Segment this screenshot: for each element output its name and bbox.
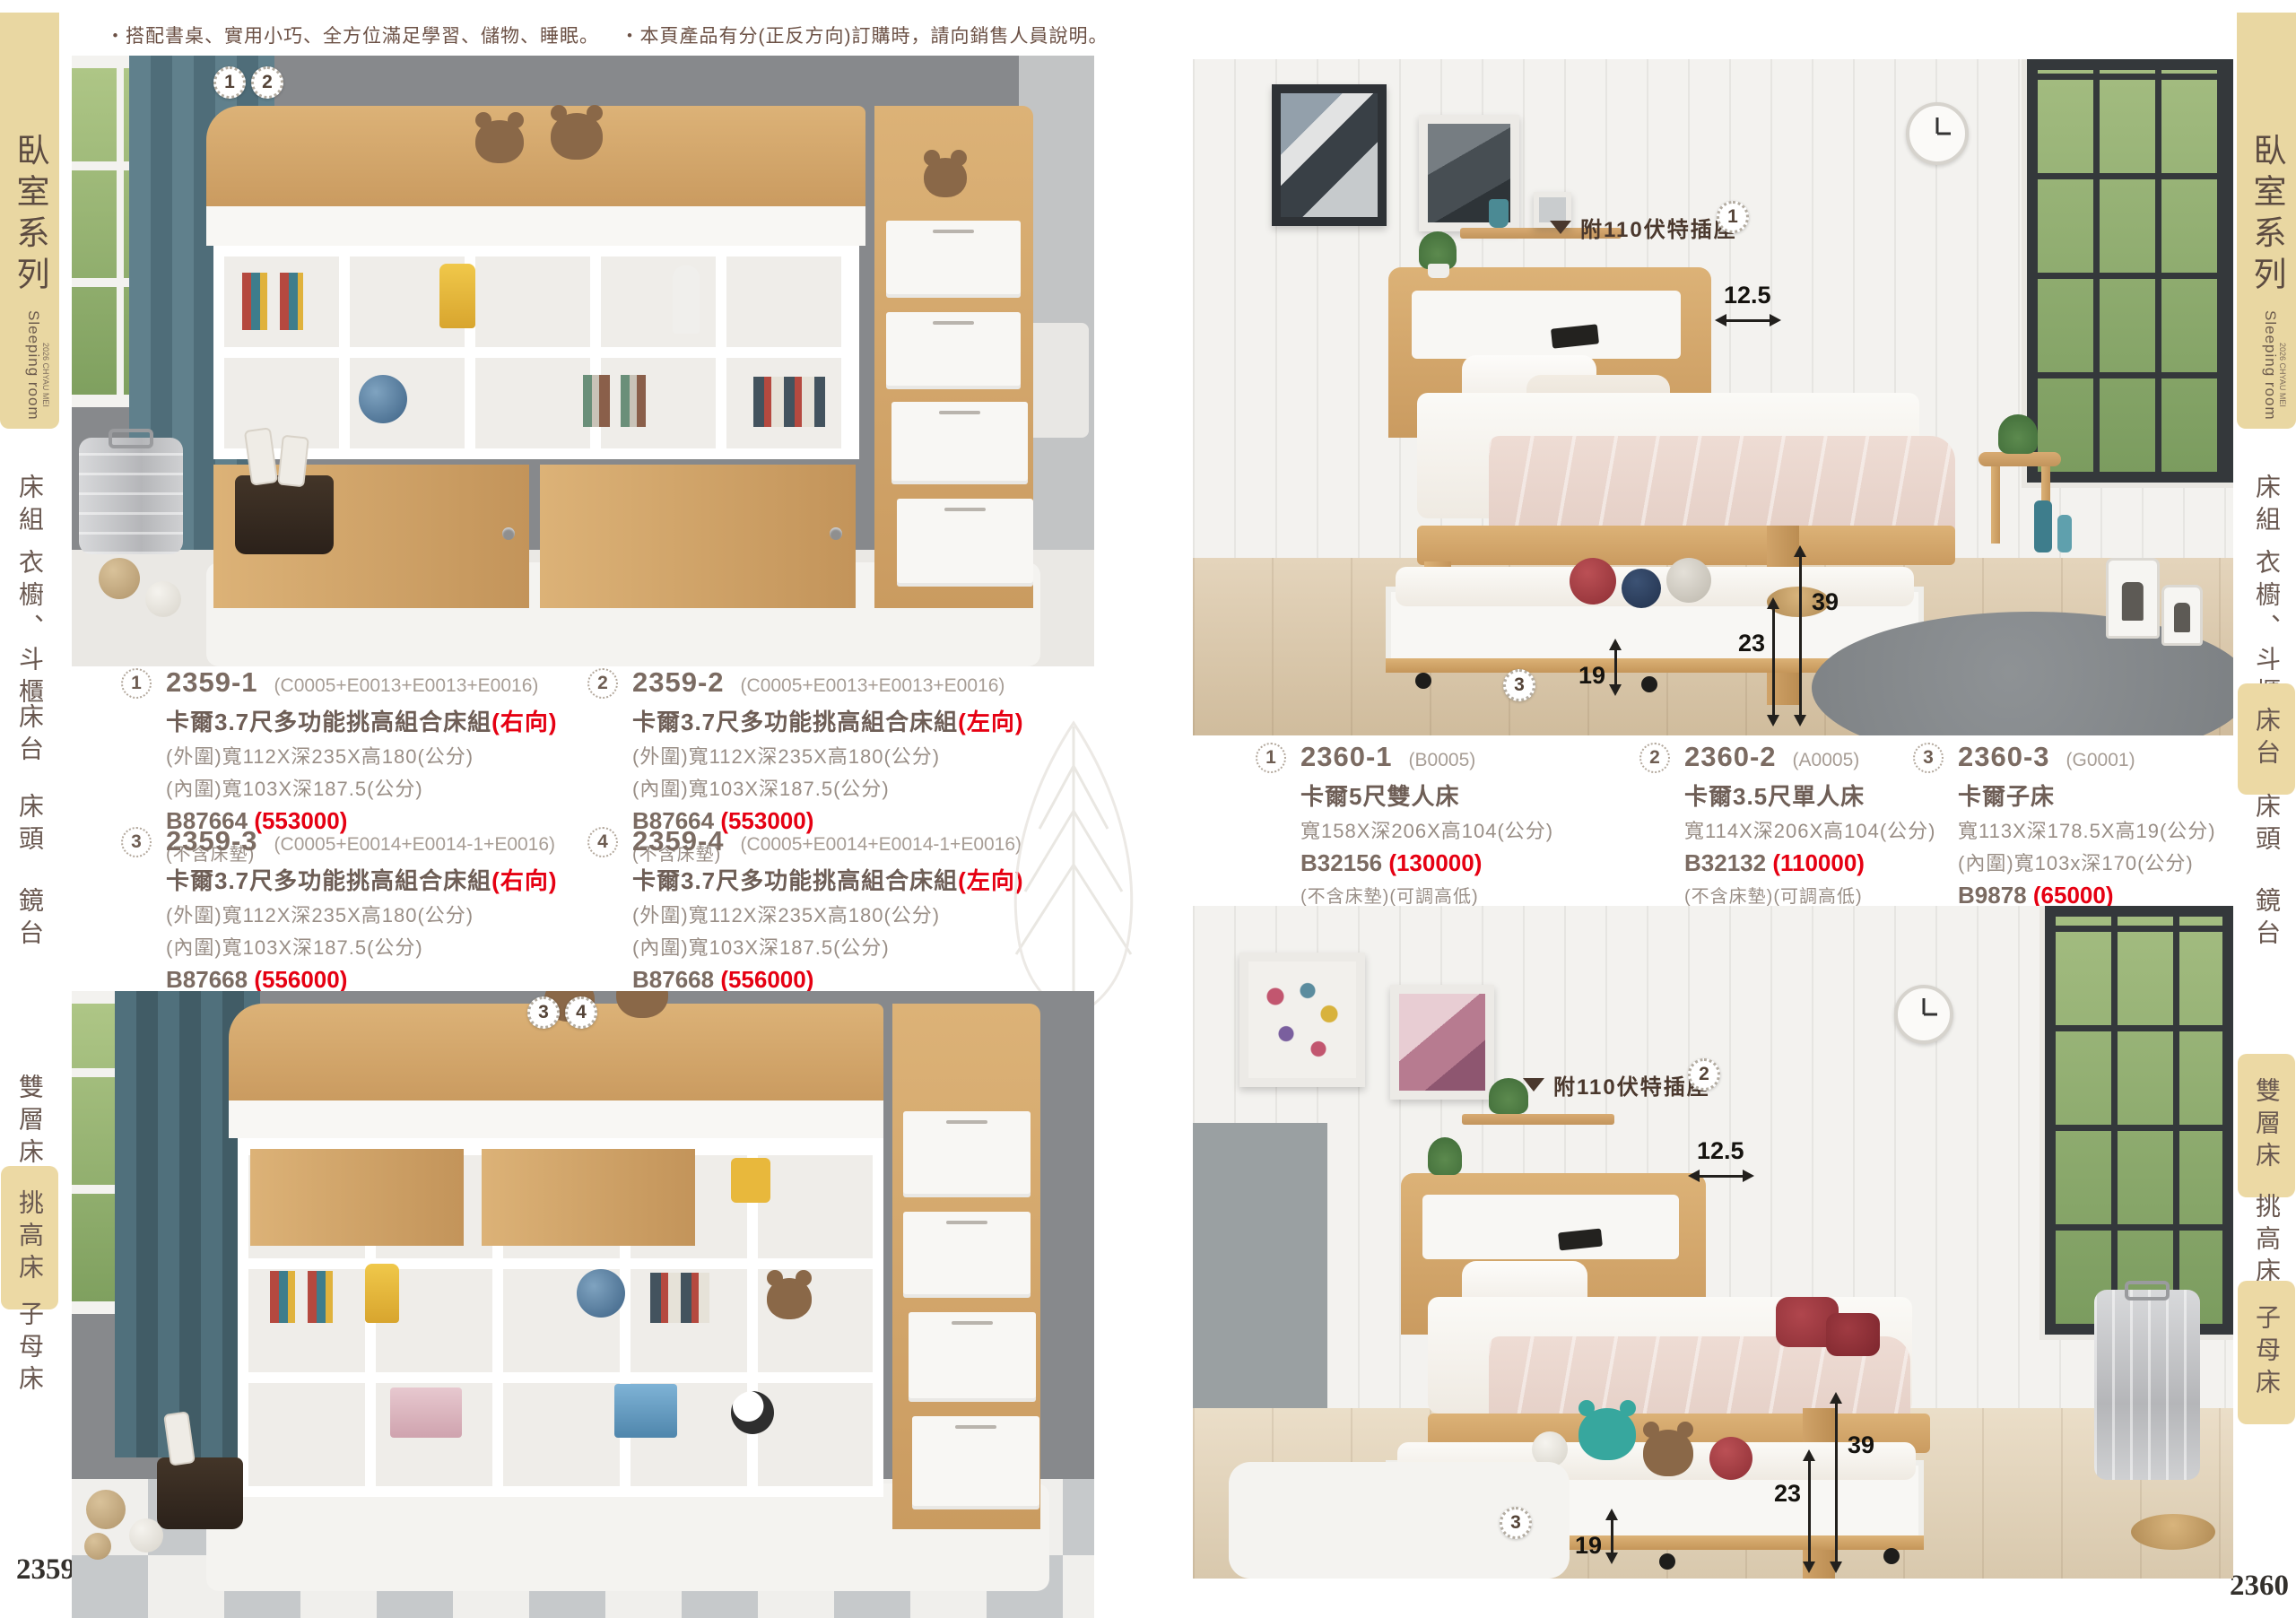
shelf-decor-mannequin <box>673 265 700 334</box>
photo-double-bed-trundle: 附110伏特插座 1 12.5 39 23 19 3 <box>1193 59 2233 735</box>
series-tab-right: 臥室系列 Sleeping room 2026 CHYAU MEI <box>2237 13 2296 429</box>
wicker-ball <box>145 581 181 617</box>
dim-shelf-label: 12.5 <box>1724 282 1771 309</box>
page-number-right: 2360 <box>2230 1570 2289 1603</box>
photo-marker-2: 2 <box>1688 1058 1720 1091</box>
sidebar-left-item-headboards: 床頭 <box>12 793 48 857</box>
series-edition: 2026 CHYAU MEI <box>2278 343 2287 407</box>
photo-marker-3: 3 <box>527 996 560 1029</box>
dim-leg-label: 39 <box>1812 588 1839 616</box>
stair-drawer <box>886 312 1021 389</box>
potted-plant <box>1428 1137 1462 1175</box>
product-name-text: 卡爾3.7尺多功能挑高組合床組 <box>166 709 491 735</box>
product-model: 2359-1 <box>166 666 258 699</box>
dim-leg-arrow <box>1835 1397 1838 1568</box>
photo-marker-1: 1 <box>1717 201 1749 233</box>
door-knob <box>502 527 515 540</box>
dim-trundle-label: 19 <box>1578 662 1605 690</box>
caster-wheel <box>1641 676 1657 692</box>
product-price: (556000) <box>254 966 347 993</box>
shelf-decor-books <box>650 1273 709 1323</box>
headboard-panel <box>1412 291 1681 359</box>
loft-bed-unit <box>229 1004 1040 1529</box>
shelf-decor-panda-ball <box>731 1391 774 1434</box>
product-combo-code: (C0005+E0014+E0014-1+E0016) <box>741 834 1022 856</box>
product-price: (556000) <box>720 966 813 993</box>
outlet-label: 附110伏特插座 <box>1553 1069 1710 1100</box>
shelf-door <box>250 1149 464 1246</box>
shelf-decor-toy <box>731 1158 770 1203</box>
product-code: B87668 <box>632 966 714 993</box>
sidebar-left-item-trundle-beds: 子母床 <box>12 1300 48 1397</box>
headboard-panel <box>1422 1195 1679 1259</box>
shelf-decor-box <box>614 1384 677 1438</box>
teddy-bear <box>1643 1430 1693 1476</box>
product-spec: (外圍)寬112X深235X高180(公分) <box>166 741 557 770</box>
product-marker: 1 <box>1256 743 1286 773</box>
product-spec: (內圍)寬103X深187.5(公分) <box>166 773 557 802</box>
product-name: 卡爾3.5尺單人床 <box>1684 779 1936 812</box>
sidebar-right-item-bed-frames-active: 床台 <box>2238 683 2295 795</box>
product-name: 卡爾3.7尺多功能挑高組合床組(右向) <box>166 704 557 737</box>
product-name-text: 卡爾3.7尺多功能挑高組合床組 <box>632 709 958 735</box>
teddy-bear <box>475 120 524 163</box>
gray-wall <box>1193 1123 1327 1419</box>
product-price: (110000) <box>1772 849 1865 876</box>
product-spec: 寬114X深206X高104(公分) <box>1684 815 1936 844</box>
header-note-2: ・本頁產品有分(正反方向)訂購時，請向銷售人員說明。 <box>621 26 1109 47</box>
product-marker: 4 <box>587 827 618 857</box>
series-edition: 2026 CHYAU MEI <box>41 343 50 407</box>
series-title: 臥室系列 <box>2242 133 2291 298</box>
shelf-decor-lantern <box>365 1264 399 1323</box>
outlet-label: 附110伏特插座 <box>1580 212 1737 243</box>
rolled-cushion-red <box>1570 558 1616 605</box>
sidebar-left-item-bunk-beds: 雙層床 <box>12 1074 48 1170</box>
product-model: 2360-3 <box>1958 741 2050 773</box>
sidebar-left-item-bed-sets: 床組 <box>12 474 48 538</box>
product-name: 卡爾子床 <box>1958 779 2216 812</box>
rolled-cushion-white <box>1666 558 1711 603</box>
teddy-bear <box>924 158 967 197</box>
product-code-price: B32132 (110000) <box>1684 849 1936 877</box>
dim-shelf-arrow <box>1720 319 1776 322</box>
tree-watermark <box>982 710 1166 1024</box>
sidebar-right-item-headboards: 床頭 <box>2248 793 2284 857</box>
stair-drawer <box>903 1111 1031 1197</box>
sidebar-left-item-loft-beds-active: 挑高床 <box>1 1166 58 1309</box>
stair-drawer <box>891 402 1028 484</box>
photo-marker-3: 3 <box>1503 669 1535 701</box>
product-spec: 寬158X深206X高104(公分) <box>1300 815 1553 844</box>
shelf-decor-books <box>583 375 646 427</box>
sliding-door-right <box>540 465 856 608</box>
product-model: 2359-4 <box>632 825 725 857</box>
teddy-bear <box>551 113 603 160</box>
picture-frame <box>1390 985 1494 1100</box>
product-code-price: B87668 (556000) <box>166 966 557 994</box>
caster-wheel <box>1415 673 1431 689</box>
product-price: (130000) <box>1388 849 1482 876</box>
rolled-cushion-red <box>1709 1437 1752 1480</box>
shelf-vase <box>1489 199 1509 228</box>
rolled-cushion-navy <box>1622 569 1661 608</box>
dim-frame-arrow <box>1808 1455 1811 1568</box>
shelf-decor-globe <box>577 1269 625 1318</box>
product-marker: 2 <box>1639 743 1670 773</box>
shelf-door <box>482 1149 695 1246</box>
decor-bottle <box>2034 500 2052 552</box>
outlet-annotation: 附110伏特插座 <box>1523 1069 1710 1100</box>
dim-shelf-arrow <box>1693 1175 1749 1178</box>
window <box>2027 59 2233 483</box>
product-model: 2359-2 <box>632 666 725 699</box>
sidebar-right-item-loft-beds: 挑高床 <box>2248 1193 2284 1290</box>
storage-basket <box>235 475 334 554</box>
product-name: 卡爾3.7尺多功能挑高組合床組(左向) <box>632 863 1023 896</box>
product-spec: (外圍)寬112X深235X高180(公分) <box>632 900 1023 928</box>
product-marker: 3 <box>121 827 152 857</box>
suitcase <box>2094 1290 2200 1480</box>
sidebar-right-item-bunk-beds-active: 雙層床 <box>2238 1054 2295 1197</box>
product-spec: (內圍)寬103x深170(公分) <box>1958 848 2216 876</box>
photo-loft-bed-left-version: 3 4 <box>72 991 1094 1618</box>
header-notes: ・搭配書桌、實用小巧、全方位滿足學習、儲物、睡眠。・本頁產品有分(正反方向)訂購… <box>106 22 1138 48</box>
outlet-annotation: 附110伏特插座 <box>1550 212 1737 243</box>
photo-loft-bed-right-version: 1 2 <box>72 56 1094 666</box>
product-code: B32156 <box>1300 849 1382 876</box>
stair-drawer <box>912 1416 1039 1509</box>
door-knob <box>830 527 842 540</box>
wall-shelf <box>1462 1114 1614 1125</box>
sidebar-right-item-vanities: 鏡台 <box>2248 887 2284 952</box>
product-model: 2360-1 <box>1300 741 1393 773</box>
product-note: (不含床墊)(可調高低) <box>1684 882 1936 908</box>
product-note: (不含床墊)(可調高低) <box>1300 882 1553 908</box>
down-triangle-icon <box>1550 221 1571 234</box>
window <box>2045 906 2233 1335</box>
shelf-decor-globe <box>359 375 407 423</box>
product-name: 卡爾3.7尺多功能挑高組合床組(右向) <box>166 863 557 896</box>
plant-pot <box>1428 264 1449 278</box>
radiator <box>1026 323 1089 438</box>
photo-marker-2: 2 <box>251 66 283 99</box>
loft-bed-rail <box>206 206 865 246</box>
decor-bottle <box>2057 515 2072 552</box>
product-spec: (外圍)寬112X深235X高180(公分) <box>632 741 1023 770</box>
product-spec: (內圍)寬103X深187.5(公分) <box>632 932 1023 961</box>
bookshelf <box>213 246 859 459</box>
shelf-decor-books <box>753 377 825 427</box>
product-direction: (右向) <box>491 709 557 735</box>
product-name: 卡爾3.7尺多功能挑高組合床組(左向) <box>632 704 1023 737</box>
product-model: 2360-2 <box>1684 741 1777 773</box>
photo-marker-1: 1 <box>213 66 246 99</box>
dim-leg-arrow <box>1799 551 1802 721</box>
red-cushion <box>1826 1313 1880 1356</box>
product-combo-code: (B0005) <box>1409 750 1476 771</box>
photo-marker-3: 3 <box>1500 1507 1532 1539</box>
picture-frame <box>1272 84 1387 226</box>
dim-leg-label: 39 <box>1848 1431 1874 1459</box>
product-combo-code: (G0001) <box>2066 750 2135 771</box>
photo-single-bed-trundle: 附110伏特插座 2 12.5 39 23 19 3 <box>1193 906 2233 1579</box>
sidebar-right-item-bed-sets: 床組 <box>2248 474 2284 538</box>
product-marker: 1 <box>121 668 152 699</box>
teddy-bear <box>767 1278 812 1319</box>
teddy-bear-teal <box>1578 1408 1636 1460</box>
product-price: (65000) <box>2033 882 2114 909</box>
product-code-price: B32156 (130000) <box>1300 849 1553 877</box>
product-code-price: B87668 (556000) <box>632 966 1023 994</box>
shelf-decor-lantern <box>439 264 475 328</box>
potted-plant <box>1998 414 2038 454</box>
sidebar-right-item-trundle-beds-active: 子母床 <box>2238 1281 2295 1424</box>
series-subtitle: Sleeping room <box>2261 310 2279 421</box>
caster-wheel <box>1659 1553 1675 1570</box>
product-name-text: 卡爾3.7尺多功能挑高組合床組 <box>632 867 958 894</box>
series-title: 臥室系列 <box>5 133 54 298</box>
product-marker: 3 <box>1913 743 1944 773</box>
wicker-ball <box>99 558 140 599</box>
dim-frame-label: 23 <box>1738 630 1765 657</box>
loft-bed-headboard <box>206 106 865 206</box>
product-code: B9878 <box>1958 882 2027 909</box>
product-code: B87668 <box>166 966 248 993</box>
decor-lantern <box>2106 558 2160 639</box>
stair-drawer <box>903 1212 1031 1298</box>
catalog-spread: 臥室系列 Sleeping room 2026 CHYAU MEI 床組 衣櫥、… <box>0 0 2296 1618</box>
sidebar-left-item-vanities: 鏡台 <box>12 887 48 952</box>
photo-marker-4: 4 <box>565 996 597 1029</box>
stair-drawer <box>886 221 1021 298</box>
product-combo-code: (A0005) <box>1793 750 1860 771</box>
shelf-decor-books <box>270 1271 333 1323</box>
caster-wheel <box>1883 1548 1900 1564</box>
wall-clock <box>1894 985 1953 1044</box>
down-triangle-icon <box>1523 1078 1544 1092</box>
product-name: 卡爾5尺雙人床 <box>1300 779 1553 812</box>
rolled-poster <box>277 435 309 488</box>
dim-trundle-arrow <box>1614 644 1617 691</box>
product-combo-code: (C0005+E0014+E0014-1+E0016) <box>274 834 556 856</box>
product-code: B32132 <box>1684 849 1766 876</box>
product-spec: (外圍)寬112X深235X高180(公分) <box>166 900 557 928</box>
shelf-decor-books <box>242 273 303 330</box>
product-marker: 2 <box>587 668 618 699</box>
loft-bed-rail <box>229 1100 883 1138</box>
suitcase <box>79 438 183 554</box>
product-spec: 寬113X深178.5X高19(公分) <box>1958 815 2216 844</box>
dim-trundle-label: 19 <box>1575 1532 1602 1560</box>
product-combo-code: (C0005+E0013+E0013+E0016) <box>741 675 1005 697</box>
storage-basket <box>157 1457 243 1529</box>
stool-leg <box>1991 466 2000 544</box>
wicker-ball <box>129 1518 163 1553</box>
sidebar-left-item-wardrobes: 衣櫥、斗櫃 <box>12 549 48 710</box>
product-combo-code: (C0005+E0013+E0013+E0016) <box>274 675 539 697</box>
stair-drawer <box>897 499 1033 587</box>
series-subtitle: Sleeping room <box>24 310 42 421</box>
dim-frame-arrow <box>1772 603 1775 721</box>
product-spec: (內圍)寬103X深187.5(公分) <box>632 773 1023 802</box>
wicker-ball <box>84 1533 111 1560</box>
sidebar-left-item-bed-frames: 床台 <box>12 703 48 768</box>
product-spec: (內圍)寬103X深187.5(公分) <box>166 932 557 961</box>
product-name-text: 卡爾3.7尺多功能挑高組合床組 <box>166 867 491 894</box>
picture-frame <box>1239 953 1365 1087</box>
dim-trundle-arrow <box>1611 1514 1613 1559</box>
dim-shelf-label: 12.5 <box>1697 1137 1744 1165</box>
stair-drawer <box>909 1312 1036 1402</box>
straw-hat <box>2131 1514 2215 1550</box>
series-tab-left: 臥室系列 Sleeping room 2026 CHYAU MEI <box>0 13 59 429</box>
page-number-left: 2359 <box>16 1553 75 1587</box>
bedside-stool <box>1979 452 2061 466</box>
decor-lantern <box>2161 585 2203 646</box>
wicker-ball <box>86 1490 126 1529</box>
shelf-decor-box <box>390 1387 462 1438</box>
wall-clock <box>1906 102 1969 165</box>
dim-frame-label: 23 <box>1774 1480 1801 1508</box>
product-model: 2359-3 <box>166 825 258 857</box>
product-direction: (右向) <box>491 867 557 894</box>
header-note-1: ・搭配書桌、實用小巧、全方位滿足學習、儲物、睡眠。 <box>106 26 590 47</box>
